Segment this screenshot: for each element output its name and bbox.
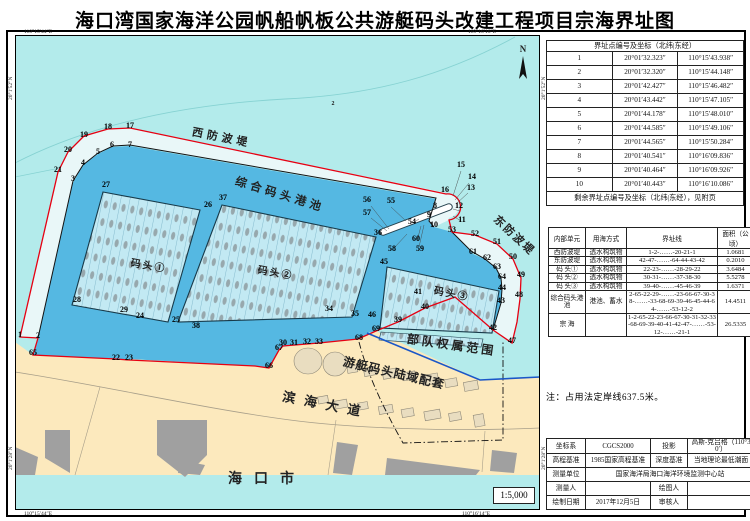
boundary-point-label: 7: [128, 140, 132, 149]
survey-map-sheet: 海口湾国家海洋公园帆船帆板公共游艇码头改建工程项目宗海界址图: [0, 0, 750, 521]
table-cell: 1: [547, 52, 613, 66]
table-cell: 110°16′09.836″: [678, 150, 744, 164]
boundary-point-label: 22: [112, 353, 120, 362]
table-row: 绘制日期2017年12月5日审核人: [547, 496, 750, 510]
table-row: 码 头①透水构筑物22-23-……-28-29-223.6484: [549, 265, 750, 273]
boundary-point-label: 35: [351, 309, 359, 318]
table-row: 620°01′44.585″110°15′49.106″: [547, 122, 744, 136]
table-row: 1020°01′40.443″110°16′10.086″: [547, 178, 744, 192]
table-cell: 投影: [651, 439, 688, 454]
table-cell: 测量单位: [547, 468, 586, 482]
boundary-point-label: 13: [467, 183, 475, 192]
table-cell: 高斯-克吕格（110°30′）: [688, 439, 750, 454]
shoreline-note: 注：占用法定岸线637.5米。: [546, 390, 664, 403]
table-row: 420°01′43.442″110°15′47.105″: [547, 94, 744, 108]
table-footer: 剩余界址点编号及坐标（北纬|东经），见附页: [547, 192, 744, 206]
boundary-point-label: 38: [192, 321, 200, 330]
table-cell: 42-47-……-64-44-43-42: [627, 257, 718, 265]
table-cell: 20°01′44.565″: [612, 136, 678, 150]
boundary-point-label: 2: [36, 331, 40, 340]
boundary-point-label: 14: [468, 172, 476, 181]
table-cell: 110°15′46.482″: [678, 80, 744, 94]
table-row: 920°01′40.464″110°16′09.926″: [547, 164, 744, 178]
table-row: 西防波堤透水构筑物1-2-……-20-21-11.0681: [549, 249, 750, 257]
table-row: 720°01′44.565″110°15′50.284″: [547, 136, 744, 150]
table-cell: 4: [547, 94, 613, 108]
boundary-point-label: 16: [441, 185, 449, 194]
map-label: 海口市: [228, 470, 306, 487]
table-cell: 码 头③: [549, 282, 586, 290]
boundary-point-label: 21: [54, 165, 62, 174]
table-cell: 5: [547, 108, 613, 122]
table-cell: 110°15′44.148″: [678, 66, 744, 80]
survey-info-table: 坐标系CGCS2000投影高斯-克吕格（110°30′）高程基准1985国家高程…: [546, 438, 750, 510]
boundary-point-label: 36: [374, 228, 382, 237]
table-cell: 20°01′43.442″: [612, 94, 678, 108]
table-cell: 绘制日期: [547, 496, 586, 510]
table-cell: 26.5335: [718, 314, 750, 337]
boundary-point-label: 44: [498, 283, 506, 292]
table-cell: [688, 496, 750, 510]
table-cell: 20°01′32.320″: [612, 66, 678, 80]
table-cell: 东防波堤: [549, 257, 586, 265]
boundary-point-label: 56: [363, 195, 371, 204]
boundary-point-label: 31: [290, 338, 298, 347]
table-row: 坐标系CGCS2000投影高斯-克吕格（110°30′）: [547, 439, 750, 454]
boundary-point-label: 25: [172, 315, 180, 324]
boundary-point-label: 65: [29, 348, 37, 357]
boundary-point-label: 6: [110, 140, 114, 149]
table-cell: 国家海洋局海口海洋环境监测中心站: [586, 468, 750, 482]
boundary-coordinates-table: 界址点编号及坐标（北纬|东经） 120°01′32.323″110°15′43.…: [546, 40, 744, 206]
table-cell: 20°01′40.443″: [612, 178, 678, 192]
boundary-point-label: 3: [71, 174, 75, 183]
boundary-point-label: 45: [380, 257, 388, 266]
table-row: 测量单位国家海洋局海口海洋环境监测中心站: [547, 468, 750, 482]
table-cell: 透水构筑物: [586, 249, 627, 257]
table-cell: 用海方式: [586, 228, 627, 249]
table-row: 320°01′42.427″110°15′46.482″: [547, 80, 744, 94]
table-row: 码 头③透水构筑物39-40-……-45-46-391.6371: [549, 282, 750, 290]
boundary-point-label: 58: [388, 244, 396, 253]
survey-map: 西防波堤综合码头港池东防波堤码头①码头②码头③部队权属范围游艇码头陆域配套滨海大…: [15, 35, 540, 510]
table-cell: 20°01′44.178″: [612, 108, 678, 122]
boundary-point-label: 61: [469, 247, 477, 256]
table-cell: 2: [547, 66, 613, 80]
table-cell: 1.0681: [718, 249, 750, 257]
boundary-point-label: 68: [355, 333, 363, 342]
coord-lat-left-bottom: 20°1′28″N: [8, 447, 14, 470]
boundary-point-label: 19: [80, 130, 88, 139]
table-row: 测量人绘图人: [547, 482, 750, 496]
table-cell: 1-2-65-22-23-66-67-30-31-32-33-68-69-39-…: [627, 314, 718, 337]
map-area: 西防波堤综合码头港池东防波堤码头①码头②码头③部队权属范围游艇码头陆域配套滨海大…: [15, 35, 540, 510]
boundary-point-label: 47: [508, 336, 516, 345]
boundary-point-label: 4: [81, 158, 85, 167]
table-cell: 测量人: [547, 482, 586, 496]
boundary-point-label: 41: [414, 287, 422, 296]
table-row: 120°01′32.323″110°15′43.938″: [547, 52, 744, 66]
boundary-point-label: 66: [265, 361, 273, 370]
map-label: N: [520, 44, 527, 54]
table-cell: 透水构筑物: [586, 265, 627, 273]
table-cell: 码 头②: [549, 274, 586, 282]
table-cell: 综合码头港池: [549, 290, 586, 313]
boundary-point-label: 27: [102, 180, 110, 189]
boundary-point-label: 54: [408, 217, 416, 226]
table-cell: 审核人: [651, 496, 688, 510]
coord-bottom-right: 110°16′14″E: [462, 511, 490, 517]
table-cell: 6: [547, 122, 613, 136]
boundary-point-label: 63: [493, 262, 501, 271]
boundary-point-label: 9: [427, 210, 431, 219]
boundary-point-label: 28: [73, 295, 81, 304]
table-row: 220°01′32.320″110°15′44.148″: [547, 66, 744, 80]
table-cell: 绘图人: [651, 482, 688, 496]
table-cell: 内部单元: [549, 228, 586, 249]
sea-use-units-table: 内部单元用海方式界址线面积（公顷） 西防波堤透水构筑物1-2-……-20-21-…: [548, 227, 750, 337]
boundary-point-label: 5: [96, 147, 100, 156]
boundary-point-label: 23: [125, 353, 133, 362]
table-row: 综合码头港池港池、蓄水2-65-22-29-……-23-66-67-30-38-…: [549, 290, 750, 313]
boundary-point-label: 53: [448, 225, 456, 234]
map-label: 2: [332, 101, 335, 107]
table-cell: 面积（公顷）: [718, 228, 750, 249]
info-panel: 界址点编号及坐标（北纬|东经） 120°01′32.323″110°15′43.…: [546, 40, 744, 512]
table-cell: 3: [547, 80, 613, 94]
table-cell: 港池、蓄水: [586, 290, 627, 313]
table-cell: 110°16′10.086″: [678, 178, 744, 192]
table-row: 520°01′44.178″110°15′48.010″: [547, 108, 744, 122]
table-row: 东防波堤透水构筑物42-47-……-64-44-43-420.2010: [549, 257, 750, 265]
boundary-point-label: 57: [363, 208, 371, 217]
boundary-point-label: 60: [412, 234, 420, 243]
table-cell: 20°01′40.541″: [612, 150, 678, 164]
boundary-point-label: 55: [387, 196, 395, 205]
boundary-point-label: 43: [497, 296, 505, 305]
boundary-point-label: 59: [416, 244, 424, 253]
boundary-point-label: 1: [18, 330, 22, 339]
boundary-point-label: 24: [136, 311, 144, 320]
boundary-point-label: 62: [483, 253, 491, 262]
boundary-point-label: 29: [120, 305, 128, 314]
table-row: 宗 海1-2-65-22-23-66-67-30-31-32-33-68-69-…: [549, 314, 750, 337]
table-cell: 110°15′47.105″: [678, 94, 744, 108]
coord-top-right: 110°16′16″E: [468, 29, 496, 35]
table-cell: 西防波堤: [549, 249, 586, 257]
table-cell: 9: [547, 164, 613, 178]
table-cell: 当地理论最低潮面: [688, 454, 750, 468]
table-cell: 3.6484: [718, 265, 750, 273]
table-cell: 110°15′43.938″: [678, 52, 744, 66]
boundary-point-label: 20: [64, 145, 72, 154]
table-cell: 110°15′49.106″: [678, 122, 744, 136]
boundary-point-label: 69: [372, 324, 380, 333]
table-cell: CGCS2000: [586, 439, 651, 454]
table-cell: 20°01′32.323″: [612, 52, 678, 66]
boundary-point-label: 52: [471, 229, 479, 238]
table-cell: 14.4511: [718, 290, 750, 313]
table-cell: 110°15′48.010″: [678, 108, 744, 122]
table-cell: [586, 314, 627, 337]
boundary-point-label: 32: [303, 337, 311, 346]
table-header: 界址点编号及坐标（北纬|东经）: [547, 41, 744, 52]
coord-bottom-left: 110°15′44″E: [24, 511, 52, 517]
boundary-point-label: 18: [104, 122, 112, 131]
table-cell: 透水构筑物: [586, 282, 627, 290]
table-cell: 110°16′09.926″: [678, 164, 744, 178]
table-cell: 22-23-……-28-29-22: [627, 265, 718, 273]
boundary-point-label: 67: [275, 343, 283, 352]
boundary-point-label: 37: [219, 193, 227, 202]
boundary-point-label: 17: [126, 121, 134, 130]
table-cell: 2017年12月5日: [586, 496, 651, 510]
boundary-point-label: 40: [421, 302, 429, 311]
boundary-point-label: 10: [430, 220, 438, 229]
table-cell: 坐标系: [547, 439, 586, 454]
boundary-point-label: 49: [517, 270, 525, 279]
table-cell: 码 头①: [549, 265, 586, 273]
table-cell: 0.2010: [718, 257, 750, 265]
scale-indicator: 1:5,000: [493, 487, 535, 504]
boundary-point-label: 11: [458, 215, 466, 224]
table-row: 820°01′40.541″110°16′09.836″: [547, 150, 744, 164]
table-cell: [688, 482, 750, 496]
boundary-point-label: 51: [493, 237, 501, 246]
table-cell: 界址线: [627, 228, 718, 249]
table-cell: [586, 482, 651, 496]
boundary-point-label: 26: [204, 200, 212, 209]
table-cell: 透水构筑物: [586, 257, 627, 265]
boundary-point-label: 46: [368, 310, 376, 319]
coord-top-left: 110°15′44″E: [24, 29, 52, 35]
table-cell: 深度基准: [651, 454, 688, 468]
table-cell: 1.6371: [718, 282, 750, 290]
table-cell: 10: [547, 178, 613, 192]
table-cell: 110°15′50.284″: [678, 136, 744, 150]
coord-lat-left-top: 20°1′52″N: [8, 77, 14, 100]
table-cell: 30-31-……-37-38-30: [627, 274, 718, 282]
table-cell: 2-65-22-29-……-23-66-67-30-38-……-33-68-69…: [627, 290, 718, 313]
boundary-point-label: 39: [394, 315, 402, 324]
boundary-point-label: 33: [315, 337, 323, 346]
table-row: 码 头②透水构筑物30-31-……-37-38-305.5278: [549, 274, 750, 282]
table-cell: 1985国家高程基准: [586, 454, 651, 468]
table-cell: 5.5278: [718, 274, 750, 282]
boundary-point-label: 64: [498, 272, 506, 281]
boundary-point-label: 50: [509, 252, 517, 261]
table-cell: 透水构筑物: [586, 274, 627, 282]
page-title: 海口湾国家海洋公园帆船帆板公共游艇码头改建工程项目宗海界址图: [0, 6, 750, 33]
boundary-point-label: 34: [325, 304, 333, 313]
table-cell: 20°01′44.585″: [612, 122, 678, 136]
table-cell: 20°01′40.464″: [612, 164, 678, 178]
table-cell: 20°01′42.427″: [612, 80, 678, 94]
boundary-point-label: 8: [433, 201, 437, 210]
boundary-point-label: 15: [457, 160, 465, 169]
boundary-point-label: 48: [515, 290, 523, 299]
table-row: 高程基准1985国家高程基准深度基准当地理论最低潮面: [547, 454, 750, 468]
table-cell: 1-2-……-20-21-1: [627, 249, 718, 257]
table-cell: 高程基准: [547, 454, 586, 468]
table-cell: 39-40-……-45-46-39: [627, 282, 718, 290]
boundary-point-label: 42: [489, 323, 497, 332]
table-cell: 7: [547, 136, 613, 150]
table-cell: 8: [547, 150, 613, 164]
table-cell: 宗 海: [549, 314, 586, 337]
boundary-point-label: 12: [455, 201, 463, 210]
